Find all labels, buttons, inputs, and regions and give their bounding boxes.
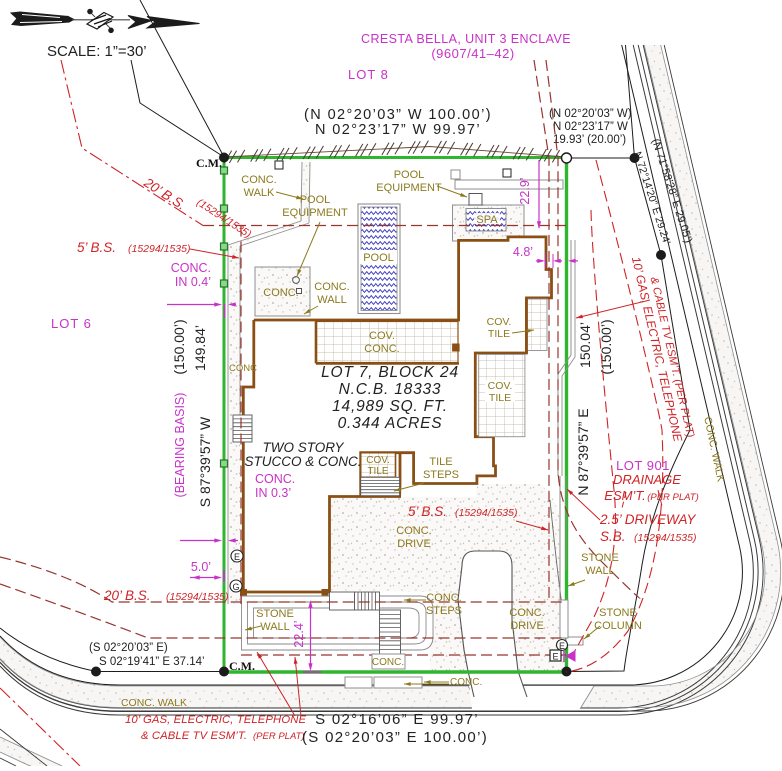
svg-text:S 87°39’57” W: S 87°39’57” W [197, 416, 213, 507]
svg-text:22.4’: 22.4’ [292, 620, 306, 647]
svg-text:19.93’ (20.00’): 19.93’ (20.00’) [553, 134, 626, 146]
svg-text:SPA: SPA [476, 214, 498, 226]
svg-text:S 02°19’41” E 37.14’: S 02°19’41” E 37.14’ [99, 656, 205, 668]
svg-text:TILE: TILE [489, 392, 511, 404]
svg-text:E: E [552, 652, 558, 662]
svg-text:EQUIPMENT: EQUIPMENT [282, 207, 348, 219]
svg-text:CONC. WALK: CONC. WALK [121, 697, 187, 709]
svg-text:(15294/1535): (15294/1535) [166, 591, 228, 603]
svg-text:DRAINAGE: DRAINAGE [613, 472, 681, 487]
svg-text:TILE: TILE [367, 466, 388, 477]
svg-text:(15294/1535): (15294/1535) [128, 243, 190, 255]
svg-text:TILE: TILE [488, 328, 510, 340]
svg-text:(15294/1535): (15294/1535) [634, 532, 696, 544]
svg-text:E: E [234, 552, 240, 562]
svg-text:(N 02°20’03” W 100.00’): (N 02°20’03” W 100.00’) [304, 107, 492, 123]
svg-text:4.8’: 4.8’ [513, 245, 533, 259]
svg-text:STONE: STONE [599, 607, 637, 619]
svg-text:150.04’: 150.04’ [577, 322, 593, 368]
svg-text:(150.00’): (150.00’) [171, 319, 187, 374]
svg-text:10’ GAS, ELECTRIC, TELEPHONE: 10’ GAS, ELECTRIC, TELEPHONE [125, 714, 306, 726]
svg-text:LOT 901: LOT 901 [616, 458, 670, 473]
svg-text:LOT 7, BLOCK 24: LOT 7, BLOCK 24 [321, 364, 459, 381]
svg-text:STEPS: STEPS [423, 469, 459, 481]
svg-text:WALK: WALK [244, 187, 275, 199]
svg-text:(N 02°20’03” W): (N 02°20’03” W) [549, 108, 632, 120]
svg-text:C.M.: C.M. [229, 659, 255, 673]
svg-text:S.B.: S.B. [600, 529, 626, 544]
svg-text:(BEARING BASIS): (BEARING BASIS) [173, 393, 187, 498]
svg-text:G: G [232, 582, 239, 592]
svg-text:STEPS: STEPS [426, 605, 462, 617]
svg-text:CONC.: CONC. [450, 677, 482, 688]
svg-text:WALL: WALL [260, 621, 290, 633]
svg-text:STONE: STONE [581, 552, 619, 564]
svg-text:WALL: WALL [585, 565, 615, 577]
svg-text:CONC.: CONC. [263, 287, 298, 299]
svg-text:POOL: POOL [394, 169, 425, 181]
svg-text:TWO STORY: TWO STORY [263, 440, 345, 455]
svg-text:COV.: COV. [488, 380, 513, 392]
svg-text:COV.: COV. [366, 455, 390, 466]
svg-text:CONC: CONC [229, 363, 257, 374]
svg-text:N.C.B. 18333: N.C.B. 18333 [339, 381, 442, 398]
svg-text:EQUIPMENT: EQUIPMENT [376, 182, 442, 194]
svg-text:POOL: POOL [363, 252, 394, 264]
svg-text:(PER PLAT): (PER PLAT) [647, 492, 699, 503]
svg-text:CRESTA BELLA, UNIT 3 ENCLAVE: CRESTA BELLA, UNIT 3 ENCLAVE [361, 32, 571, 46]
svg-text:SCALE: 1”=30’: SCALE: 1”=30’ [47, 43, 147, 60]
svg-text:& CABLE TV ESM’T.: & CABLE TV ESM’T. [141, 730, 247, 742]
svg-text:(9607/41–42): (9607/41–42) [431, 46, 514, 61]
svg-text:IN 0.4’: IN 0.4’ [175, 275, 211, 289]
svg-text:N 02°23’17” W 99.97’: N 02°23’17” W 99.97’ [315, 122, 481, 138]
svg-text:149.84’: 149.84’ [192, 325, 208, 371]
svg-text:2.5’ DRIVEWAY: 2.5’ DRIVEWAY [599, 512, 697, 527]
svg-text:COV.: COV. [487, 316, 512, 328]
svg-text:CONC.: CONC. [364, 343, 399, 355]
svg-text:14,989 SQ. FT.: 14,989 SQ. FT. [332, 398, 448, 415]
svg-text:S 02°16’06” E 99.97’: S 02°16’06” E 99.97’ [315, 711, 479, 728]
svg-text:POOL: POOL [300, 194, 331, 206]
svg-text:CONC.: CONC. [372, 657, 404, 668]
svg-text:DRIVE: DRIVE [397, 538, 431, 550]
svg-text:CONC.: CONC. [314, 281, 349, 293]
svg-text:(PER PLAT): (PER PLAT) [253, 731, 305, 742]
svg-text:20’ B.S.: 20’ B.S. [103, 588, 151, 603]
svg-text:5’ B.S.: 5’ B.S. [77, 240, 116, 255]
svg-text:LOT 6: LOT 6 [51, 316, 92, 331]
svg-text:(S 02°20’03” E 100.00’): (S 02°20’03” E 100.00’) [302, 729, 488, 746]
svg-text:CONC.: CONC. [509, 607, 544, 619]
svg-text:5’ B.S.: 5’ B.S. [408, 504, 447, 519]
svg-text:CONC.: CONC. [241, 174, 276, 186]
svg-text:COLUMN: COLUMN [594, 620, 642, 632]
svg-text:5.0’: 5.0’ [191, 560, 211, 574]
svg-text:STUCCO & CONC.: STUCCO & CONC. [244, 454, 361, 469]
svg-text:C.M.: C.M. [196, 156, 222, 170]
svg-text:CONC.: CONC. [426, 592, 461, 604]
svg-text:IN 0.3’: IN 0.3’ [255, 486, 291, 500]
svg-text:CONC.: CONC. [255, 472, 295, 486]
svg-text:COV.: COV. [369, 330, 395, 342]
svg-text:N 02°23’17” W: N 02°23’17” W [553, 121, 628, 133]
svg-text:CONC.: CONC. [171, 261, 211, 275]
svg-text:N 87°39’57” E: N 87°39’57” E [575, 408, 591, 495]
svg-text:0.344 ACRES: 0.344 ACRES [338, 415, 443, 432]
svg-text:LOT 8: LOT 8 [348, 67, 389, 82]
svg-text:(S 02°20’03” E): (S 02°20’03” E) [89, 642, 168, 654]
svg-text:STONE: STONE [256, 608, 294, 620]
svg-text:CONC.: CONC. [396, 525, 431, 537]
svg-text:TILE: TILE [429, 456, 452, 468]
svg-text:DRIVE: DRIVE [510, 620, 544, 632]
svg-text:WALL: WALL [317, 294, 347, 306]
svg-text:(15294/1535): (15294/1535) [455, 507, 517, 519]
svg-text:22.9’: 22.9’ [518, 177, 532, 204]
